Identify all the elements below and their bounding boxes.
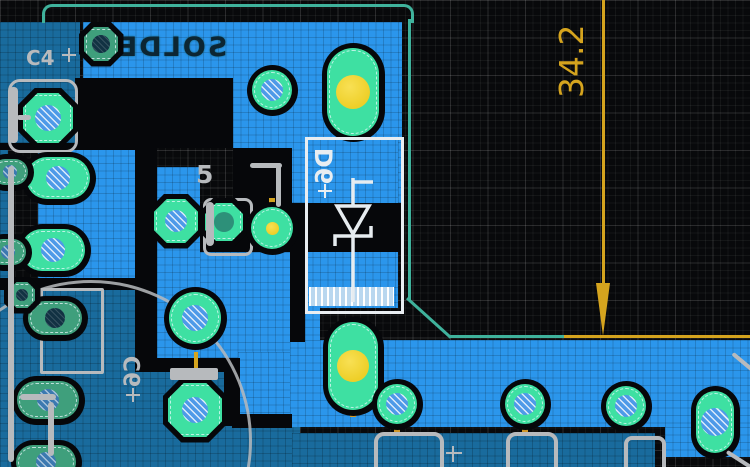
via-bot-1[interactable] [372,379,423,430]
via-bot-3[interactable] [601,381,652,432]
c4-tick[interactable] [17,115,31,120]
pad-r5-2[interactable] [246,202,299,255]
component-outline[interactable] [506,432,558,467]
pad-th-bottom-face [328,322,378,410]
pad-oval-a-face [26,157,90,199]
via-bot-1-hole [386,393,408,415]
pcb-canvas: SOLDER D6 C4 [0,0,750,467]
c4-origin-cross [68,48,70,62]
silk-trace[interactable] [20,394,56,400]
via-top-hole [261,79,283,101]
keepout-line-vertical[interactable] [408,19,411,300]
via-bot-2-hole [514,393,536,415]
pad-th-top-face [327,48,379,136]
silk-trace[interactable] [48,402,54,456]
pad-r5-1-hole [214,212,234,232]
silk-pad-bar[interactable] [170,368,218,380]
pad-oct-mid-hole [165,210,187,232]
pad-top-dark-face [84,27,118,61]
pad-oct-mid-face [154,199,198,243]
via-top-face [252,70,292,110]
pad-edge-a[interactable] [0,154,34,191]
silk-trace[interactable] [276,163,281,207]
d6-label: D6 [310,148,338,185]
pad-oct-mid[interactable] [149,194,204,249]
c4-designator[interactable]: C4 [26,46,55,70]
silk-trace-left[interactable] [8,166,14,462]
pad-edge-a-face [0,159,28,185]
snap-cross [452,446,454,462]
pad-oval-e-face [16,445,76,467]
keepout-line-bottom[interactable] [450,335,576,338]
pad-stad-right[interactable] [691,386,740,459]
pad-oval-d-hole [45,308,65,328]
pad-oct-bl[interactable] [163,378,228,443]
c6-label: C6 [121,355,146,386]
pad-r5-2-face [251,207,293,249]
via-bot-1-face [377,384,417,424]
via-mid-hole [182,305,208,331]
via-bot-2-face [505,384,545,424]
pad-r5-2-hole [266,222,279,235]
keepout-corner[interactable] [394,4,414,23]
component-outline[interactable] [624,436,666,467]
dimension-arrow-icon [596,283,610,336]
pad-top-dark[interactable] [79,22,124,67]
pad-oval-b-hole [41,238,65,262]
c6-designator[interactable]: C6 [116,344,152,398]
pad-oval-a-hole [46,166,70,190]
via-top[interactable] [247,65,298,116]
pad-th-top[interactable] [322,43,385,142]
component-outline[interactable] [374,432,444,467]
diode-symbol-icon[interactable] [331,176,375,304]
d6-origin-cross [324,184,326,198]
r5-plate-bar[interactable] [206,202,214,246]
pad-oct-bl-hole [182,397,208,423]
dimension-value[interactable]: 34.2 [552,25,591,98]
pad-stad-right-face [696,391,734,453]
pad-oval-e[interactable] [11,440,82,467]
r5-designator[interactable]: 5 [196,160,213,189]
via-mid-face [169,292,221,344]
c6-origin-cross [132,388,134,402]
dimension-line[interactable] [602,0,605,284]
pad-stad-right-hole [701,408,729,436]
via-bot-2[interactable] [500,379,551,430]
pad-th-top-hole [336,75,370,109]
pad-c4-1-hole [35,105,61,131]
pad-oct-sm-hole [16,289,28,301]
via-bot-3-face [606,386,646,426]
keepout-line-top[interactable] [56,4,398,7]
pad-edge-b[interactable] [0,234,32,271]
pad-top-dark-hole [92,35,110,53]
pad-th-bottom-hole [337,350,369,382]
via-bot-3-hole [615,395,637,417]
pad-oct-bl-face [168,383,222,437]
snap-cross [446,452,462,454]
dimension-extension-line[interactable] [564,335,750,338]
via-mid[interactable] [164,287,227,350]
